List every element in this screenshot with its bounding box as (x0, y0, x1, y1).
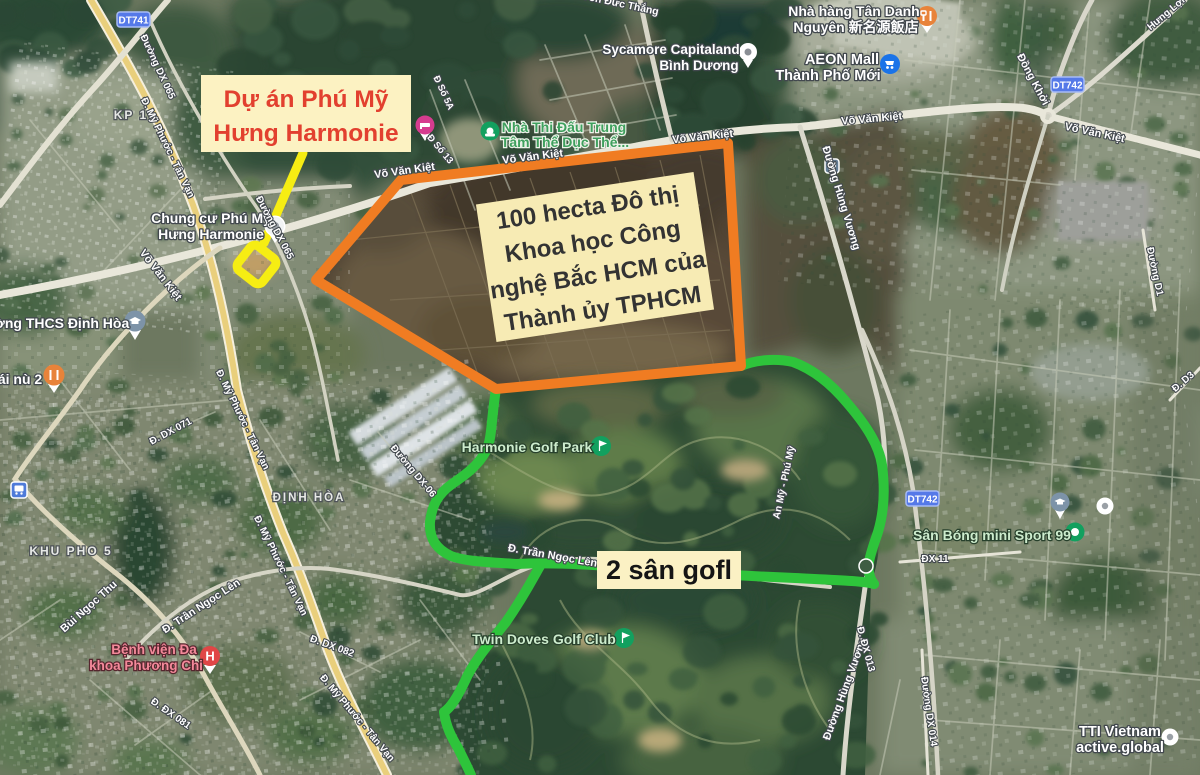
svg-text:Sân Bóng mini Sport 99: Sân Bóng mini Sport 99 (913, 527, 1071, 543)
svg-text:ường THCS Định Hòa: ường THCS Định Hòa (0, 315, 129, 331)
svg-text:active.global: active.global (1076, 740, 1164, 756)
svg-text:Tâm Thể Dục Thể...: Tâm Thể Dục Thể... (501, 134, 629, 150)
svg-text:TTI Vietnam: TTI Vietnam (1079, 724, 1161, 740)
svg-text:Bình Dương: Bình Dương (659, 58, 738, 73)
svg-text:H: H (205, 649, 214, 664)
svg-text:AEON Mall: AEON Mall (805, 52, 879, 68)
svg-text:ĐỊNH HÒA: ĐỊNH HÒA (273, 491, 346, 504)
svg-text:ĐX 11: ĐX 11 (921, 554, 949, 565)
svg-text:khoa Phương Chi: khoa Phương Chi (89, 658, 203, 673)
svg-text:Nguyên 新名源飯店: Nguyên 新名源飯店 (793, 19, 918, 35)
svg-text:Nhà Thi Đấu Trung: Nhà Thi Đấu Trung (502, 119, 626, 135)
svg-text:Thành Phố Mới: Thành Phố Mới (775, 68, 880, 84)
svg-text:Bệnh viện Đa: Bệnh viện Đa (111, 642, 197, 657)
svg-text:2 sân gofl: 2 sân gofl (606, 555, 732, 585)
svg-text:Dự án Phú Mỹ: Dự án Phú Mỹ (224, 86, 389, 113)
svg-text:Harmonie Golf Park: Harmonie Golf Park (462, 439, 593, 455)
svg-text:Hưng Harmonie: Hưng Harmonie (213, 120, 398, 147)
svg-text:Hưng Harmonie: Hưng Harmonie (158, 226, 264, 242)
svg-text:DT742: DT742 (1052, 81, 1082, 92)
svg-text:Nhà hàng Tân Danh: Nhà hàng Tân Danh (788, 3, 919, 19)
svg-text:ái nù 2: ái nù 2 (0, 371, 42, 387)
svg-text:DT741: DT741 (118, 16, 148, 27)
svg-text:Chung cư Phú Mỹ: Chung cư Phú Mỹ (151, 210, 271, 226)
svg-text:Sycamore Capitaland: Sycamore Capitaland (602, 42, 739, 57)
svg-text:KHU PHO 5: KHU PHO 5 (29, 544, 112, 558)
svg-text:DT742: DT742 (907, 495, 937, 506)
svg-text:Twin Doves Golf Club: Twin Doves Golf Club (472, 631, 616, 647)
